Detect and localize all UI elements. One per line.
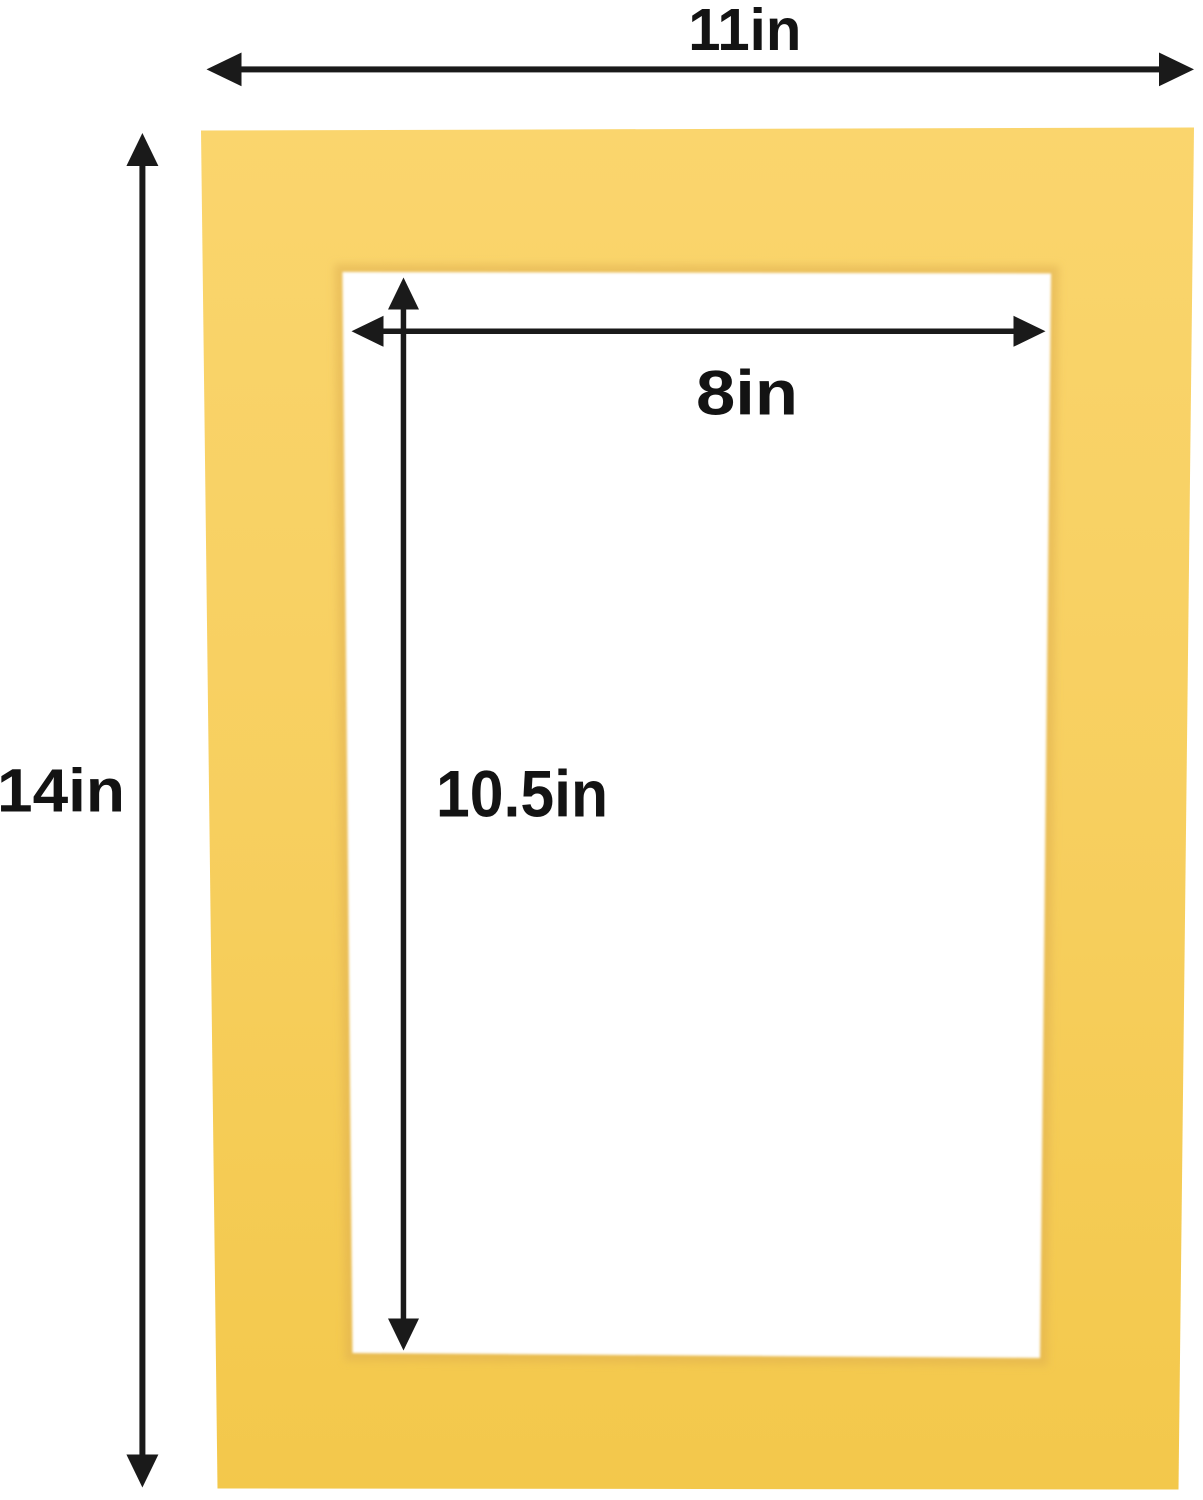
svg-text:11in: 11in bbox=[688, 0, 801, 63]
svg-text:8in: 8in bbox=[696, 359, 798, 429]
svg-text:14in: 14in bbox=[0, 757, 125, 825]
svg-text:10.5in: 10.5in bbox=[436, 757, 608, 831]
